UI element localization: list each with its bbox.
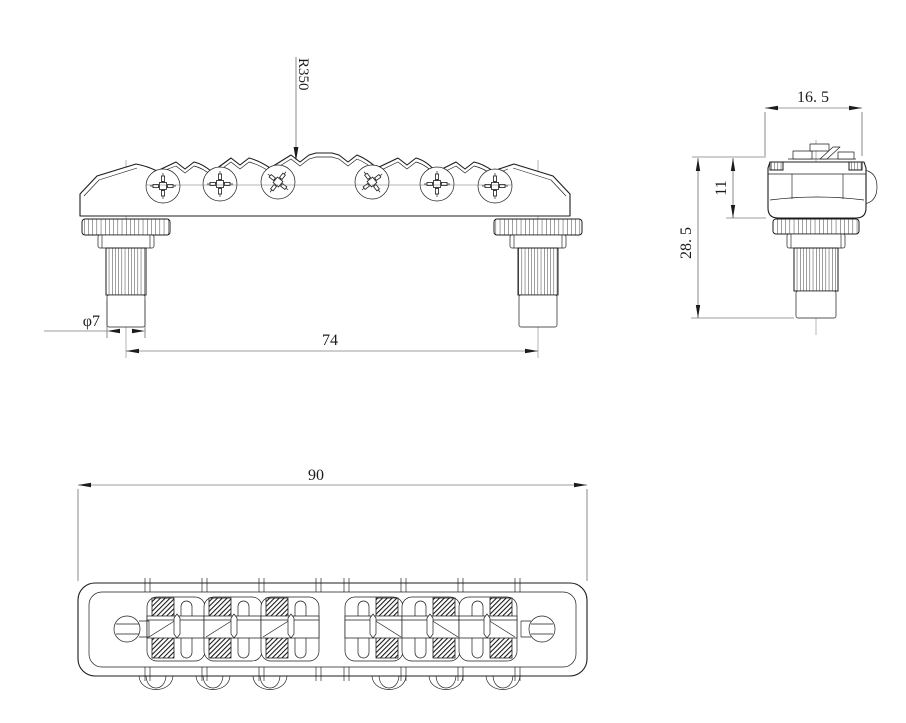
side-collar	[787, 234, 845, 248]
width-label: 16. 5	[797, 89, 829, 106]
front-right-post	[494, 219, 582, 327]
dim-arrow-icon	[849, 106, 862, 110]
left-thumbwheel	[82, 219, 170, 235]
dim-arrow-icon	[731, 158, 735, 171]
post-diameter-label: φ7	[83, 313, 100, 330]
dim-arrow-icon	[126, 349, 139, 353]
dim-saddle-radius: R350	[294, 57, 311, 161]
side-knurled-stud	[794, 248, 838, 291]
left-collar	[98, 235, 154, 248]
dim-body-height: 11	[692, 157, 766, 218]
dim-arrow-icon	[696, 158, 700, 171]
dim-arrow-icon	[731, 205, 735, 218]
front-left-post	[82, 219, 170, 327]
side-thumbwheel	[773, 219, 859, 234]
right-post-tip	[519, 295, 557, 327]
side-bridge-body	[768, 162, 877, 218]
right-collar	[510, 235, 566, 248]
total-height-label: 28. 5	[678, 227, 695, 259]
dim-arrow-icon	[765, 106, 778, 110]
left-knurled-stud	[106, 248, 146, 295]
dim-arrow-icon	[696, 305, 700, 318]
side-post	[773, 219, 859, 318]
front-view: R350 φ7 74	[44, 57, 582, 358]
body-height-label: 11	[713, 180, 730, 195]
side-left-lip	[770, 162, 783, 170]
left-post-tip	[107, 295, 145, 327]
dim-arrow-icon	[132, 329, 145, 333]
radius-label: R350	[295, 58, 311, 91]
technical-drawing-sheet: R350 φ7 74	[0, 0, 906, 723]
dim-post-spacing: 74	[126, 332, 538, 353]
side-post-tip	[796, 291, 836, 318]
plan-view: 90	[78, 467, 587, 690]
right-knurled-stud	[518, 248, 558, 295]
side-right-lip	[849, 162, 862, 170]
right-thumbwheel	[494, 219, 582, 235]
dim-arrow-icon	[525, 349, 538, 353]
side-view: 16. 5 11 28. 5	[678, 89, 877, 335]
dim-arrow-icon	[78, 483, 91, 487]
side-saddle	[788, 144, 856, 159]
post-spacing-label: 74	[322, 332, 338, 349]
bridge-drawing-svg: R350 φ7 74	[0, 0, 906, 723]
dim-overall-length: 90	[78, 467, 587, 581]
overall-length-label: 90	[308, 467, 324, 484]
dim-arrow-icon	[107, 329, 120, 333]
dim-arrow-icon	[574, 483, 587, 487]
